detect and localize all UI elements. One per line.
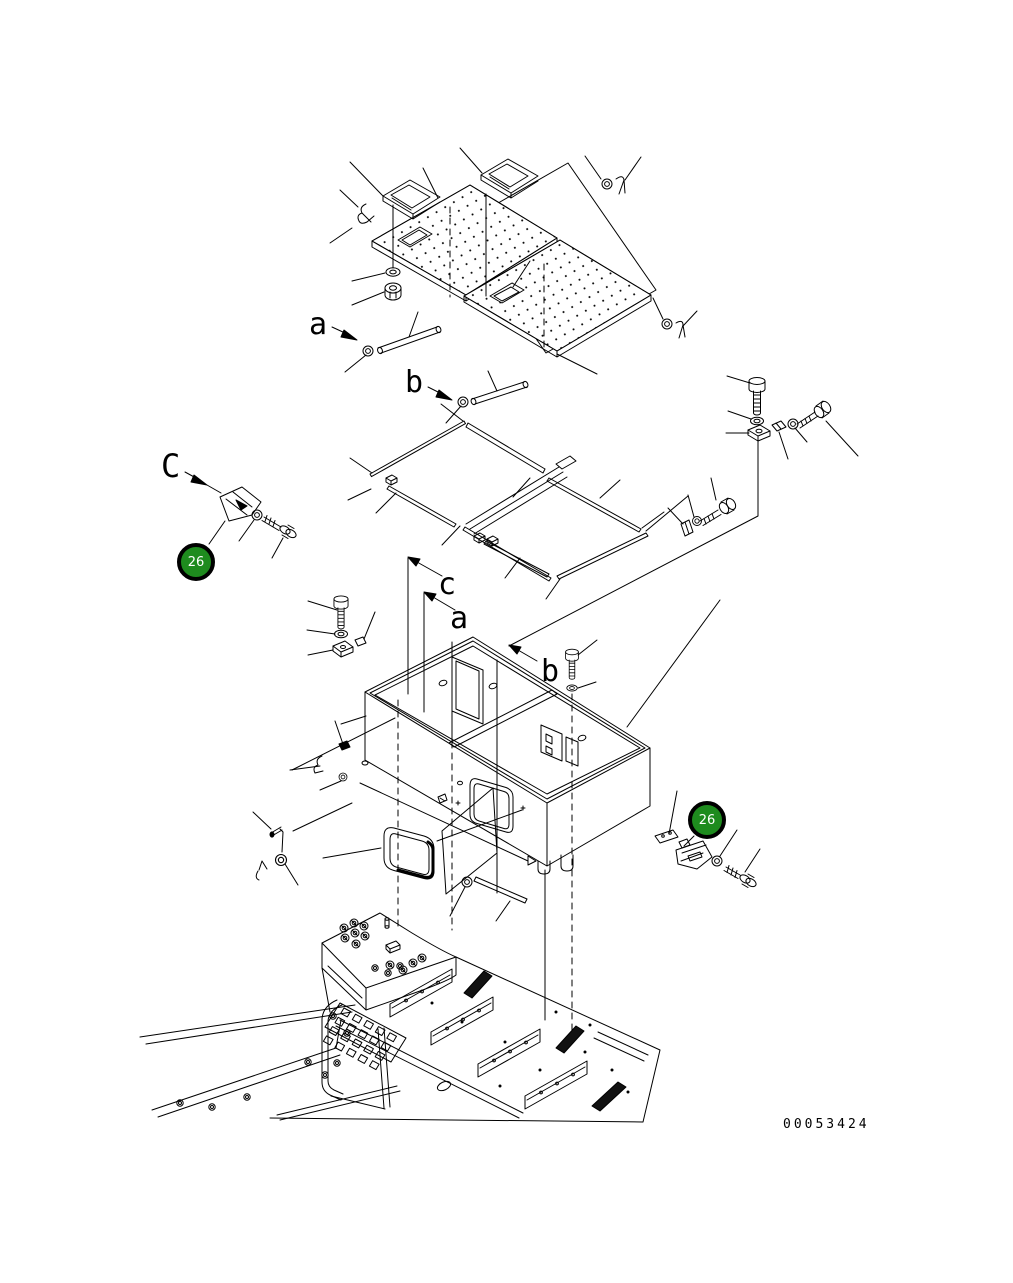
fastener-cluster-top-right xyxy=(509,376,858,646)
view-label-b-top: b xyxy=(405,365,423,400)
drawing-number: 00053424 xyxy=(783,1117,870,1132)
diagram-canvas: a b C c a b xyxy=(0,0,1013,1283)
fastener-cluster-left-mid xyxy=(307,596,375,657)
diagram-stage: a b C c a b 26 26 00053424 xyxy=(0,0,1013,1283)
part-callout-number: 26 xyxy=(699,814,716,827)
view-label-a-top: a xyxy=(309,307,327,342)
part-callout-badge-left[interactable]: 26 xyxy=(177,543,215,581)
part-callout-number: 26 xyxy=(188,556,205,569)
rod-parts-group xyxy=(345,312,529,423)
clamp-group-left xyxy=(209,487,298,558)
chassis-frame-group xyxy=(140,913,660,1122)
view-label-a-mid: a xyxy=(450,601,468,636)
battery-box-group xyxy=(253,600,720,1032)
seal-strips-group xyxy=(348,404,664,599)
cover-plates-group xyxy=(330,148,697,374)
fastener-cluster-right-mid xyxy=(646,478,738,536)
view-arrows-group xyxy=(185,327,537,712)
view-label-C-left: C xyxy=(161,447,180,485)
part-callout-badge-right[interactable]: 26 xyxy=(688,801,726,839)
view-label-b-mid: b xyxy=(541,654,559,689)
view-label-c-mid: c xyxy=(438,567,456,602)
